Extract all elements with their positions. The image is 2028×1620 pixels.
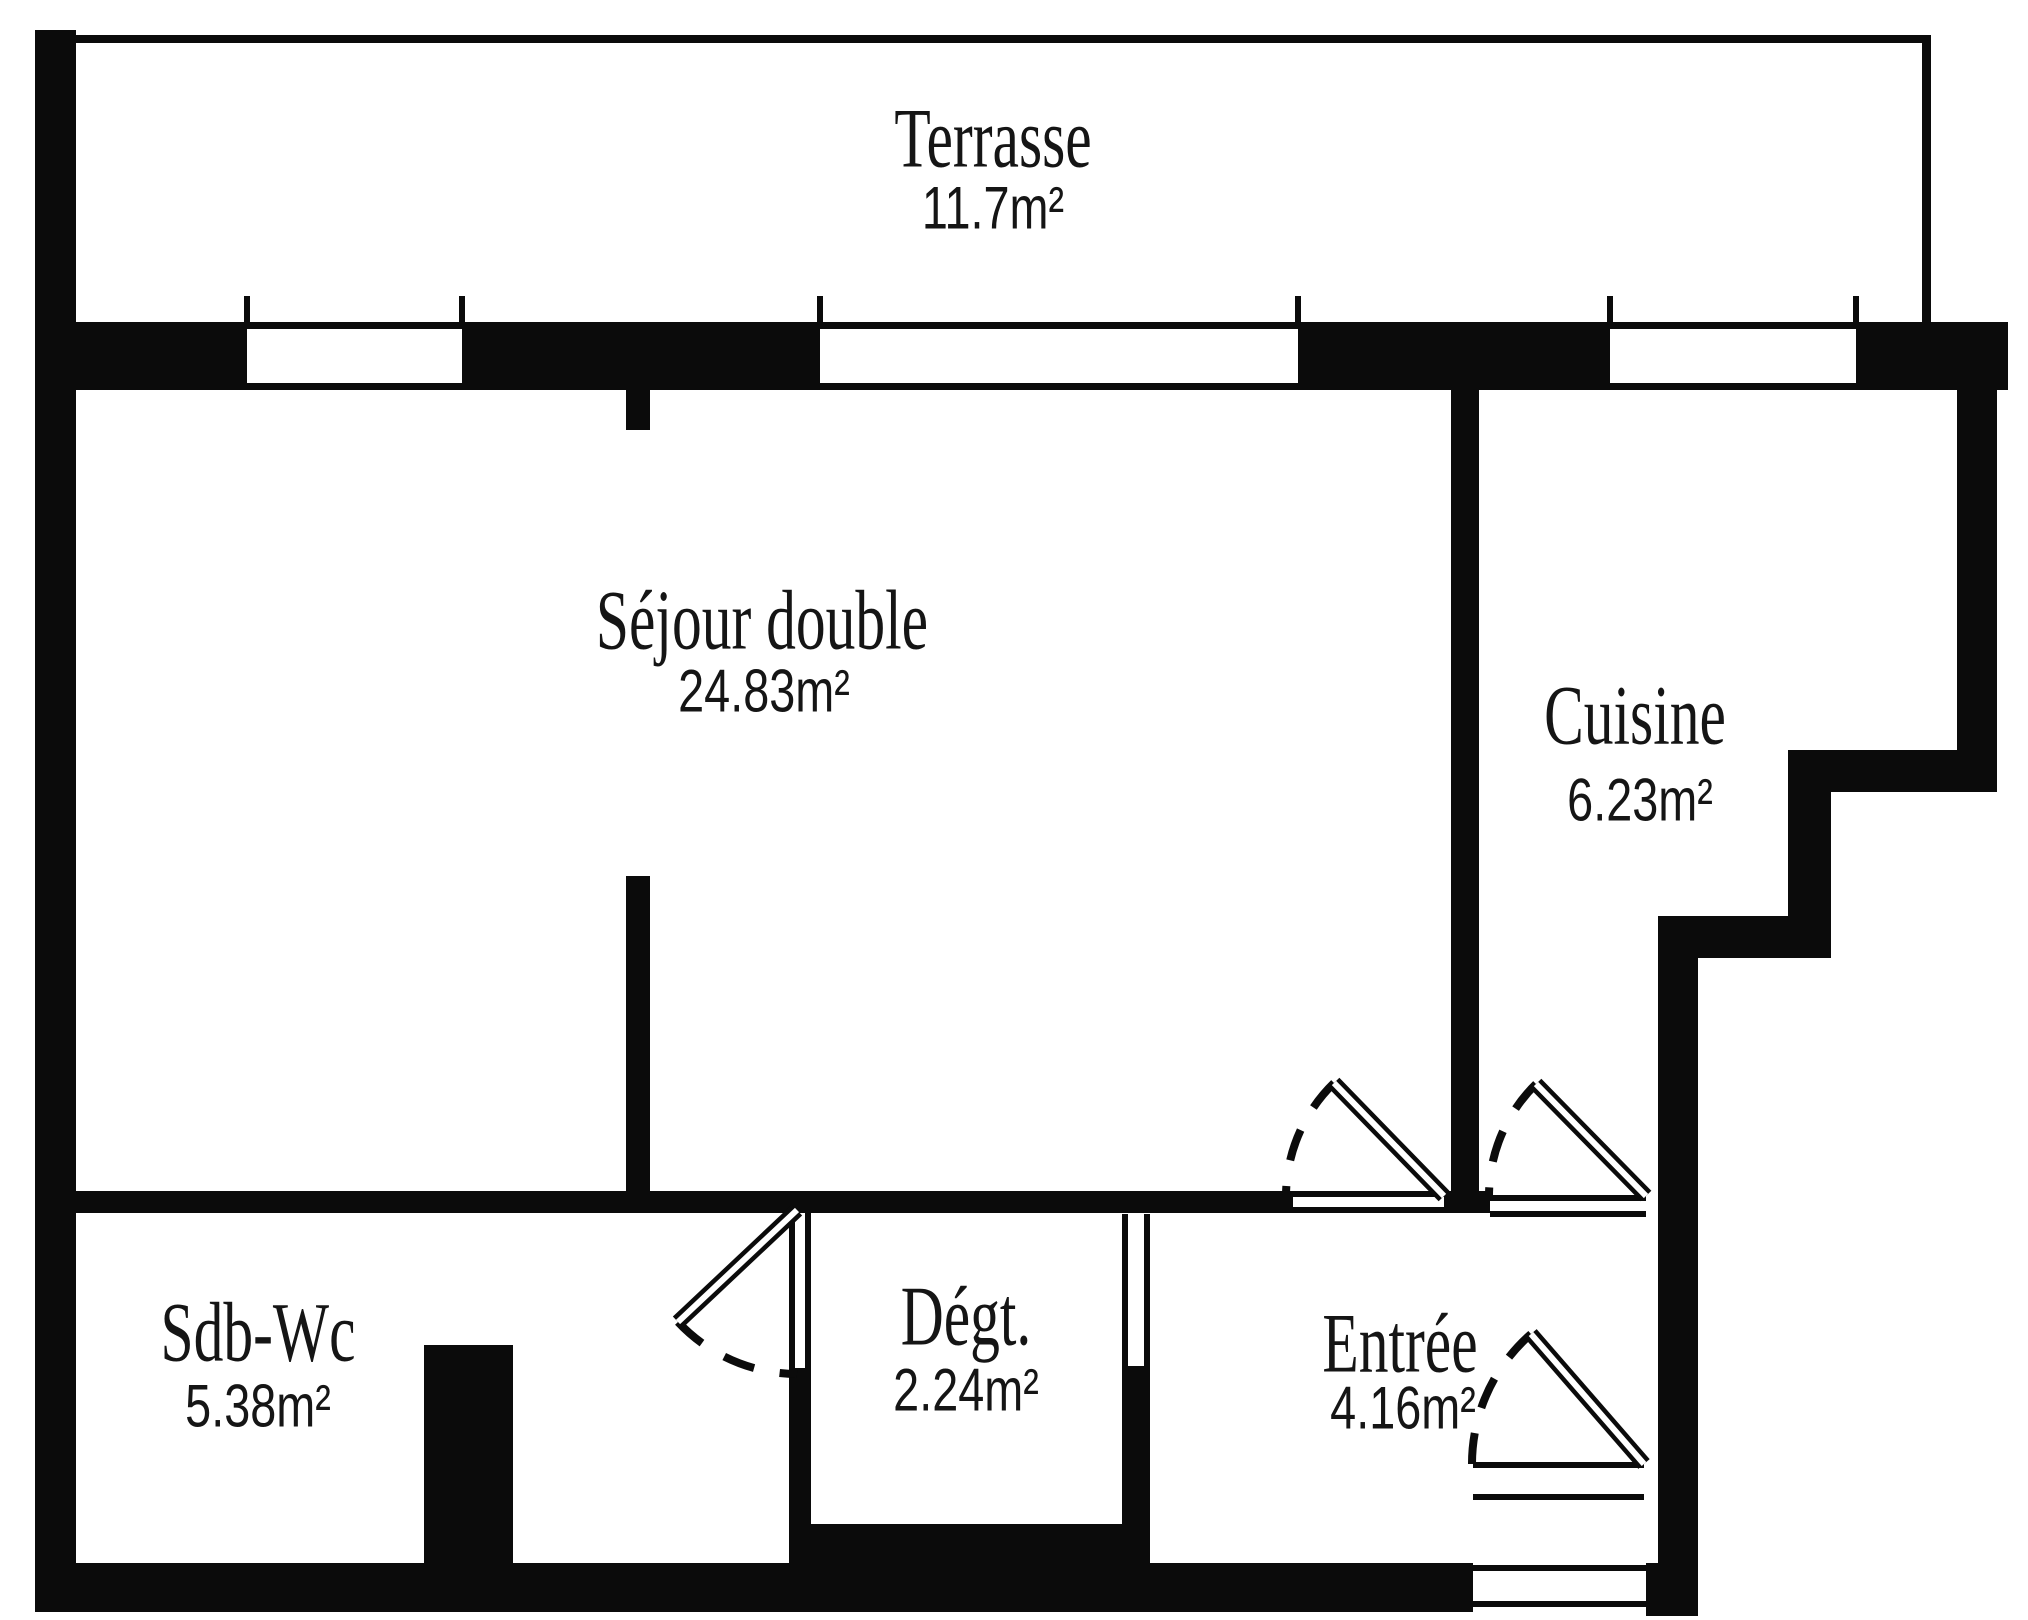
window-1	[247, 322, 462, 390]
wall-north-segment-2	[462, 322, 820, 390]
room-area-sdb-wc: 5.38m²	[185, 1375, 331, 1438]
wall-bottom-main	[35, 1563, 1473, 1612]
door-leaf	[678, 1210, 797, 1322]
wall-sejour-partition-lower	[626, 876, 650, 1213]
wall-sejour-south-a	[76, 1191, 1293, 1213]
wall-north-segment-1	[76, 322, 247, 390]
doorway-sdb	[789, 1213, 811, 1368]
wall-sejour-south-b	[1444, 1191, 1490, 1213]
doorway-degt	[1122, 1214, 1150, 1366]
window-tick	[1607, 296, 1613, 326]
door-leaf	[1536, 1084, 1646, 1196]
room-area-terrasse: 11.7m²	[922, 177, 1064, 240]
doorway-front-inner	[1473, 1462, 1644, 1500]
wall-bottom-raised-degt	[789, 1524, 1150, 1612]
wall-entree-right	[1658, 916, 1698, 1616]
window-tick	[1853, 296, 1859, 326]
doorway-cuisine	[1490, 1195, 1646, 1217]
door-arc	[678, 1322, 797, 1374]
room-label-degt: Dégt.	[901, 1272, 1032, 1361]
room-label-terrasse: Terrasse	[894, 94, 1091, 183]
door-swing-sdb	[678, 1210, 797, 1374]
door-leaf	[678, 1210, 797, 1322]
door-arc	[1472, 1334, 1531, 1464]
wall-north-segment-3	[1298, 322, 1610, 390]
room-area-entree: 4.16m²	[1330, 1377, 1476, 1440]
door-leaf	[1334, 1083, 1444, 1196]
wall-right-upper	[1957, 322, 1997, 790]
door-arc	[1489, 1084, 1536, 1196]
window-tick	[1295, 296, 1301, 326]
door-leaf	[1531, 1334, 1644, 1464]
room-label-cuisine: Cuisine	[1544, 671, 1726, 760]
room-area-sejour-double: 24.83m²	[678, 660, 850, 723]
window-tick	[817, 296, 823, 326]
window-tick	[459, 296, 465, 326]
door-swing-front	[1472, 1334, 1644, 1464]
door-swing-sejour	[1286, 1083, 1444, 1196]
doorway-front-outer	[1473, 1565, 1646, 1607]
door-leaf	[1334, 1083, 1444, 1196]
door-leaf	[1531, 1334, 1644, 1464]
wall-sejour-partition-upper	[626, 390, 650, 430]
window-3	[1610, 322, 1856, 390]
room-label-sejour-double: Séjour double	[596, 576, 928, 665]
wall-cuisine-left	[1451, 390, 1479, 1213]
door-arc	[1286, 1083, 1334, 1196]
window-tick	[244, 296, 250, 326]
wall-left-exterior	[35, 30, 76, 1612]
terrace-right-edge-line	[1922, 35, 1931, 328]
window-2	[820, 322, 1298, 390]
wall-bottom-right-jamb	[1646, 1563, 1698, 1616]
terrace-top-edge-line	[76, 35, 1922, 43]
door-swing-cuisine	[1489, 1084, 1646, 1196]
room-label-sdb-wc: Sdb-Wc	[161, 1288, 356, 1377]
room-area-cuisine: 6.23m²	[1567, 769, 1713, 832]
door-leaf	[1536, 1084, 1646, 1196]
doorway-sejour	[1293, 1191, 1444, 1213]
floor-plan: Terrasse 11.7m² Séjour double 24.83m² Cu…	[0, 0, 2028, 1620]
room-area-degt: 2.24m²	[893, 1359, 1039, 1422]
